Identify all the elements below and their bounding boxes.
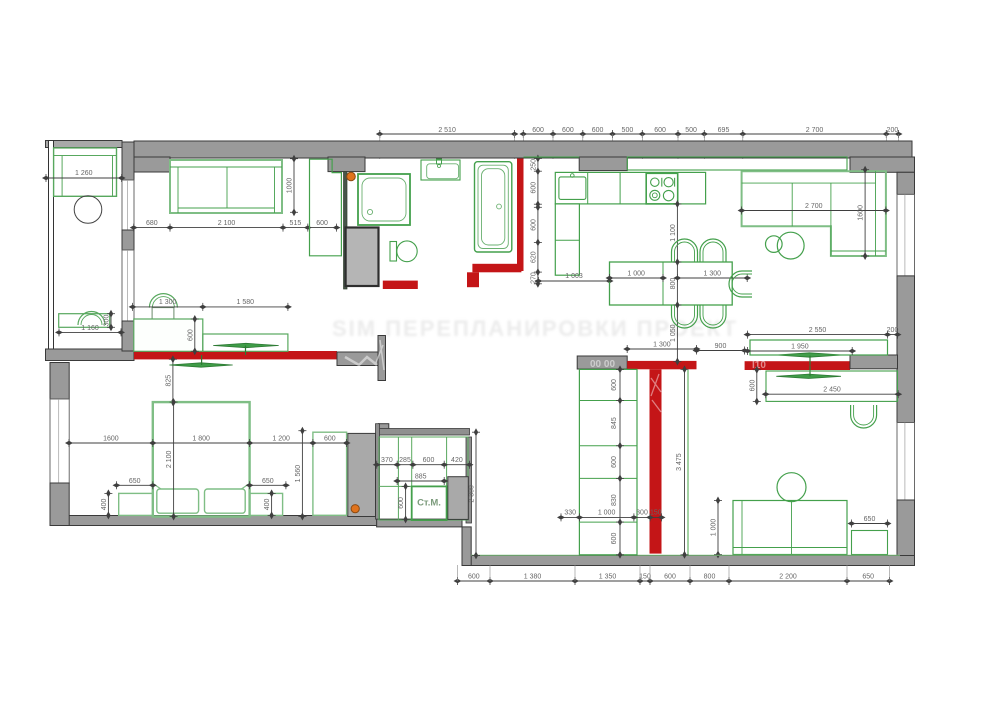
svg-text:1 380: 1 380 [524,574,542,581]
svg-text:285: 285 [399,457,411,464]
svg-text:1 800: 1 800 [192,436,210,443]
svg-text:600: 600 [664,574,676,581]
svg-text:650: 650 [262,478,274,485]
svg-text:1 350: 1 350 [599,574,617,581]
svg-text:2 700: 2 700 [805,203,823,210]
svg-text:250: 250 [530,159,537,171]
svg-text:845: 845 [611,417,618,429]
svg-text:800: 800 [704,574,716,581]
svg-text:1600: 1600 [858,205,865,221]
svg-text:600: 600 [324,436,336,443]
svg-text:00 00: 00 00 [590,359,615,370]
svg-text:420: 420 [451,457,463,464]
svg-text:2 300: 2 300 [469,485,476,503]
svg-text:2 450: 2 450 [823,387,841,394]
svg-text:1000: 1000 [287,178,294,194]
svg-text:400: 400 [264,498,271,510]
svg-text:600: 600 [530,182,537,194]
svg-text:1 200: 1 200 [272,436,290,443]
svg-text:330: 330 [564,510,576,517]
svg-text:515: 515 [290,220,302,227]
svg-text:2 100: 2 100 [218,220,236,227]
svg-text:885: 885 [415,474,427,481]
svg-text:200: 200 [887,127,899,134]
svg-text:500: 500 [622,127,634,134]
svg-text:400: 400 [101,498,108,510]
svg-text:1 580: 1 580 [237,299,255,306]
svg-text:300: 300 [636,510,648,517]
svg-text:600: 600 [398,497,405,509]
svg-text:1 300: 1 300 [653,342,671,349]
svg-text:2 510: 2 510 [438,127,456,134]
svg-text:1 950: 1 950 [791,344,809,351]
svg-text:650: 650 [862,574,874,581]
svg-text:600: 600 [562,127,574,134]
svg-text:1 260: 1 260 [75,170,93,177]
svg-text:3 475: 3 475 [676,453,683,471]
svg-text:600: 600 [316,220,328,227]
svg-text:695: 695 [718,127,730,134]
svg-text:600: 600 [611,456,618,468]
svg-text:600: 600 [611,379,618,391]
svg-text:200: 200 [887,327,899,334]
svg-text:600: 600 [749,380,756,392]
svg-text:650: 650 [864,516,876,523]
svg-text:1 000: 1 000 [711,519,718,537]
svg-text:900: 900 [715,343,727,350]
svg-text:270: 270 [530,272,537,284]
svg-text:620: 620 [530,251,537,263]
svg-text:1 000: 1 000 [627,271,645,278]
svg-text:600: 600 [187,329,194,341]
svg-text:1 300: 1 300 [159,299,177,306]
svg-text:2 200: 2 200 [779,574,797,581]
svg-text:1 160: 1 160 [81,325,99,332]
svg-text:600: 600 [611,533,618,545]
svg-text:150: 150 [639,574,651,581]
svg-text:1600: 1600 [103,436,119,443]
svg-text:680: 680 [146,220,158,227]
svg-text:1 050: 1 050 [670,324,677,342]
svg-text:300: 300 [104,315,111,327]
svg-text:Ст.М.: Ст.М. [417,498,441,509]
svg-text:600: 600 [468,574,480,581]
svg-text:2 550: 2 550 [809,327,827,334]
svg-text:1 100: 1 100 [670,224,677,242]
svg-text:370: 370 [381,457,393,464]
svg-text:2 700: 2 700 [806,127,824,134]
svg-text:600: 600 [530,219,537,231]
svg-text:500: 500 [685,127,697,134]
svg-text:600: 600 [423,457,435,464]
svg-text:1 300: 1 300 [704,271,722,278]
svg-text:830: 830 [611,494,618,506]
svg-text:600: 600 [592,127,604,134]
svg-text:600: 600 [532,127,544,134]
svg-text:1 003: 1 003 [565,273,583,280]
svg-text:650: 650 [129,478,141,485]
svg-text:150: 150 [650,510,662,517]
svg-text:800: 800 [670,278,677,290]
svg-text:2 100: 2 100 [166,450,173,468]
svg-text:825: 825 [165,375,172,387]
svg-text:1 560: 1 560 [295,465,302,483]
svg-text:600: 600 [654,127,666,134]
svg-text:1 000: 1 000 [598,510,616,517]
